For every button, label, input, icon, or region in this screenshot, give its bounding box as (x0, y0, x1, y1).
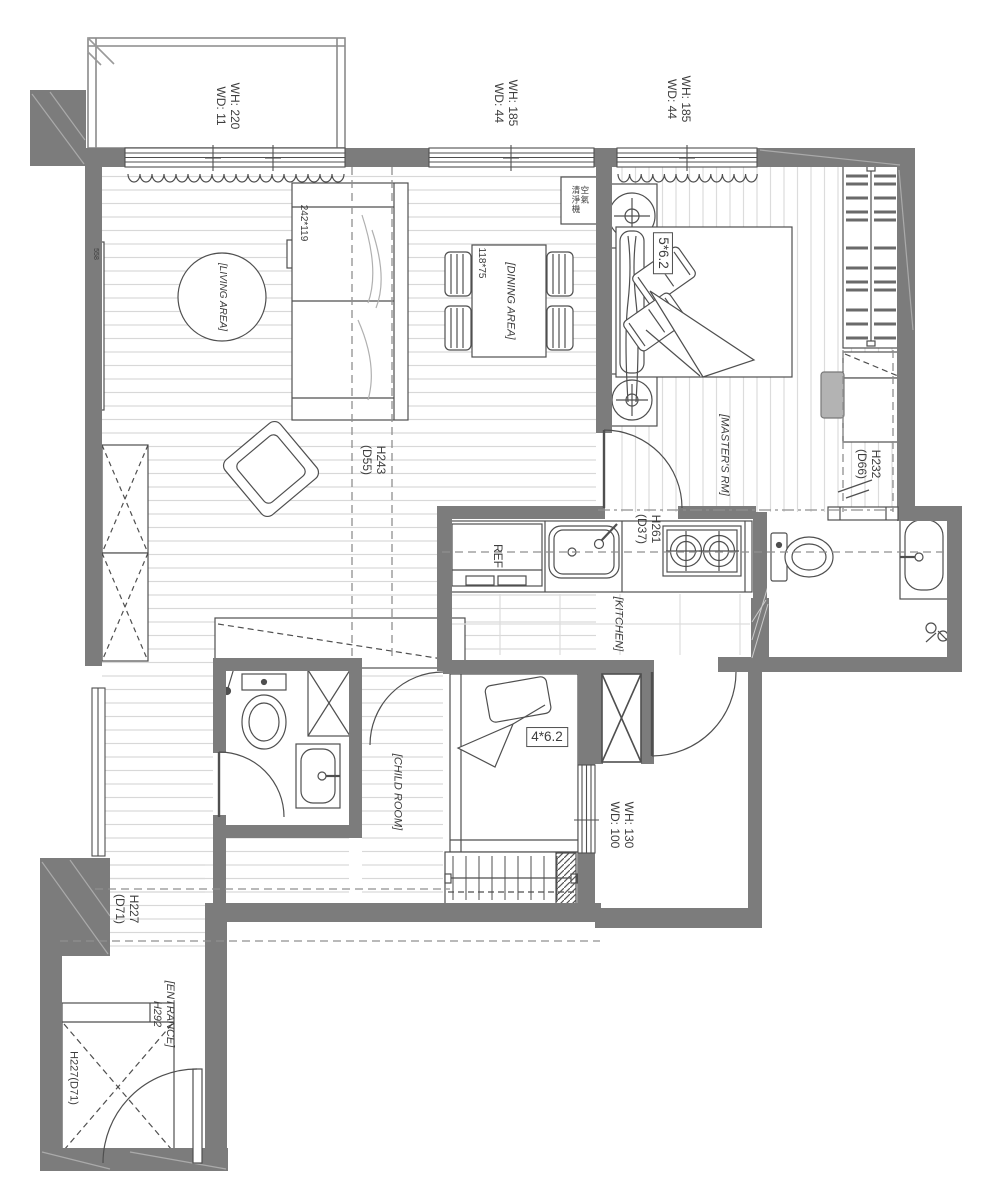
master-bath-fixtures (771, 515, 948, 642)
label-kitchen: [KITCHEN] (612, 597, 625, 651)
vanity-desk (843, 378, 900, 442)
vanity-chair (821, 372, 844, 418)
label-air-purifier: 空氣清淨機 (571, 186, 589, 215)
label-sofa-size: 242*119 (297, 205, 309, 242)
label-living-window: WH: 185WD: 44 (492, 80, 520, 127)
shower-faucet (926, 623, 936, 633)
label-refrigerator: REF (491, 544, 505, 568)
label-master-bed-size: 5*6.2 (653, 232, 673, 274)
label-balcony-window: WH: 220WD: 11 (214, 83, 242, 130)
upper-cabinet (843, 352, 900, 378)
child-furniture (445, 674, 578, 908)
label-living-area: [LIVING AREA] (216, 263, 228, 331)
floor-plan-canvas: WH: 220WD: 11 WH: 185WD: 44 WH: 185WD: 4… (0, 0, 1000, 1203)
label-beam-h261: H261(D37) (635, 514, 663, 544)
entry-door-leaf (193, 1069, 202, 1163)
label-beam-h227: H227(D71) (113, 894, 141, 924)
bath2-fixtures (224, 668, 351, 808)
label-dining-area: [DINING AREA] (504, 262, 517, 339)
label-wall-note: 558 (91, 248, 99, 260)
label-entrance-cabinet-beam: H227(D71) (67, 1051, 80, 1105)
label-child-bed-size: 4*6.2 (526, 727, 568, 747)
label-master-window: WH: 185WD: 44 (665, 76, 693, 123)
sliding-door (828, 507, 898, 520)
label-child-window: WH: 130WD: 100 (608, 802, 636, 849)
label-beam-h243: H243(D55) (360, 445, 388, 475)
label-beam-h232: H232(D66) (855, 449, 883, 479)
label-dining-table-size: 118*75 (475, 248, 487, 279)
label-masters-rm: [MASTER'S RM] (718, 414, 731, 496)
label-child-room: [CHILD ROOM] (391, 754, 404, 830)
shaft (602, 674, 641, 762)
label-entrance: [ENTRANCE]H292 (150, 981, 176, 1048)
